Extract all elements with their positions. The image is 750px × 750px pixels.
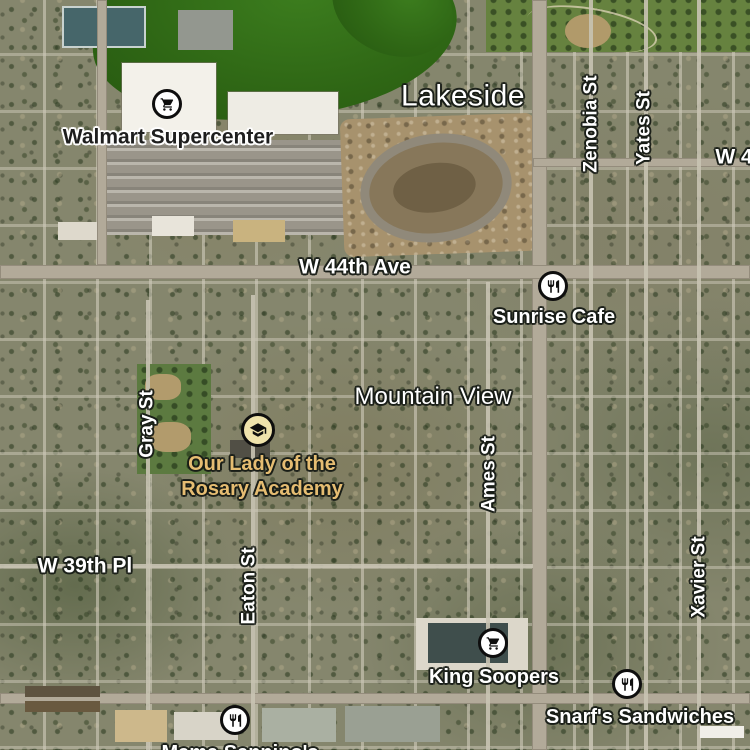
restaurant-glyph	[620, 677, 635, 692]
poi-label-line1: Our Lady of the	[181, 452, 343, 477]
restaurant-glyph	[228, 713, 243, 728]
street-xavier	[697, 0, 701, 750]
school-icon[interactable]	[241, 413, 275, 447]
commercial-building	[345, 706, 440, 742]
cart-glyph	[160, 97, 175, 112]
road-label-w39th-pl: W 39th Pl	[38, 554, 133, 577]
shopping-cart-icon[interactable]	[152, 89, 182, 119]
restaurant-icon[interactable]	[538, 271, 568, 301]
street-label-yates: Yates St	[635, 91, 656, 165]
commercial-building	[152, 216, 194, 236]
street-gray	[146, 300, 150, 750]
street-label-eaton: Eaton St	[240, 547, 261, 624]
poi-label-king-soopers[interactable]: King Soopers	[429, 666, 559, 688]
street-label-gray: Gray St	[138, 390, 159, 458]
poi-label-line2: Rosary Academy	[181, 477, 343, 502]
poi-label-mama-sanninos[interactable]: Mama Sannino's	[161, 742, 318, 750]
street-label-xavier: Xavier St	[690, 536, 711, 617]
commercial-building	[58, 222, 98, 240]
street-label-ames: Ames St	[480, 436, 501, 512]
street-label-zenobia: Zenobia St	[582, 75, 603, 172]
apartment-row	[25, 701, 100, 712]
poi-label-rosary-academy[interactable]: Our Lady of the Rosary Academy	[181, 452, 343, 502]
town-label-lakeside: Lakeside	[401, 80, 525, 113]
building-block-nw	[178, 10, 233, 50]
restaurant-glyph	[546, 279, 561, 294]
road-label-w44th-ave: W 44th Ave	[299, 255, 411, 278]
shopping-cart-icon[interactable]	[478, 628, 508, 658]
cart-glyph	[486, 636, 501, 651]
area-label-mountain-view: Mountain View	[355, 384, 512, 410]
commercial-building	[262, 708, 336, 742]
apartment-row	[25, 686, 100, 697]
school-glyph	[249, 421, 267, 439]
road-label-w4-partial: W 4	[715, 145, 750, 168]
poi-label-walmart[interactable]: Walmart Supercenter	[63, 125, 273, 148]
speedway-infield	[390, 157, 479, 218]
poi-label-snarfs[interactable]: Snarf's Sandwiches	[546, 706, 734, 728]
restaurant-icon[interactable]	[612, 669, 642, 699]
road-sheridan-blvd	[532, 0, 547, 750]
walmart-parking-lot	[107, 140, 347, 235]
street-eaton	[251, 295, 255, 750]
park-northeast	[486, 0, 750, 52]
poi-label-sunrise-cafe[interactable]: Sunrise Cafe	[493, 306, 615, 328]
ballfield	[565, 14, 611, 48]
commercial-building	[115, 710, 167, 742]
satellite-map[interactable]: Lakeside Walmart Supercenter W 44th Ave …	[0, 0, 750, 750]
restaurant-icon[interactable]	[220, 705, 250, 735]
commercial-building	[233, 220, 285, 242]
